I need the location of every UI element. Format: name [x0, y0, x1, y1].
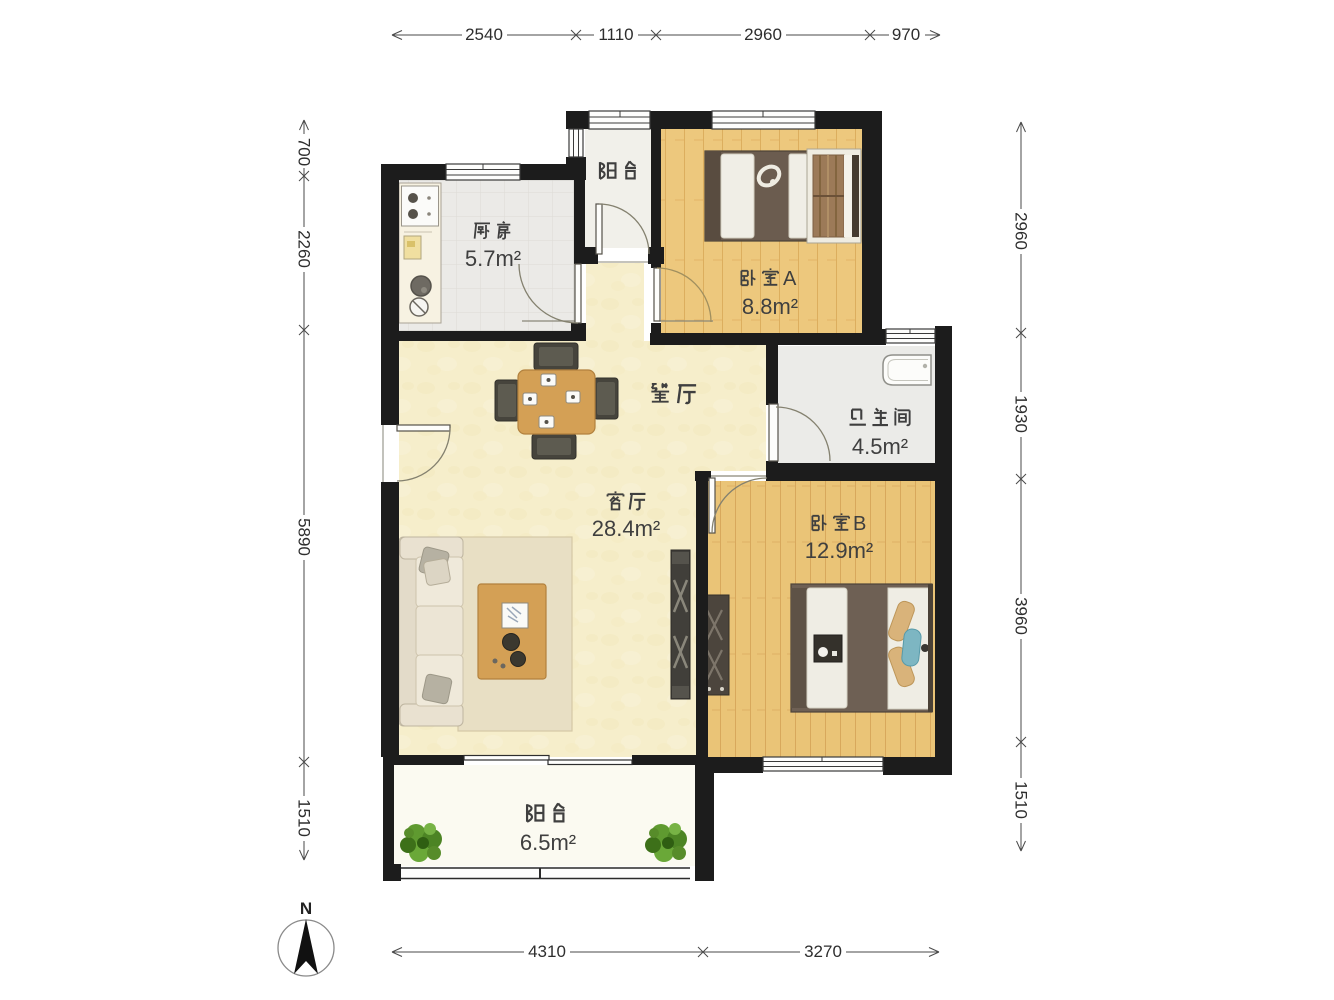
svg-text:970: 970: [892, 25, 920, 44]
svg-text:6.5m²: 6.5m²: [520, 830, 576, 855]
svg-text:B: B: [853, 513, 866, 535]
svg-text:8.8m²: 8.8m²: [742, 294, 798, 319]
svg-text:1510: 1510: [295, 799, 314, 837]
svg-text:2960: 2960: [1012, 212, 1031, 250]
svg-text:2540: 2540: [465, 25, 503, 44]
svg-text:4310: 4310: [528, 942, 566, 961]
svg-text:700: 700: [295, 138, 314, 166]
svg-text:5.7m²: 5.7m²: [465, 246, 521, 271]
svg-text:5890: 5890: [295, 518, 314, 556]
svg-text:A: A: [783, 268, 797, 290]
svg-text:N: N: [300, 899, 312, 918]
svg-text:1510: 1510: [1012, 781, 1031, 819]
svg-text:4.5m²: 4.5m²: [852, 434, 908, 459]
svg-text:3270: 3270: [804, 942, 842, 961]
svg-text:1930: 1930: [1012, 395, 1031, 433]
svg-text:1110: 1110: [598, 25, 633, 44]
svg-text:28.4m²: 28.4m²: [592, 516, 660, 541]
svg-text:2960: 2960: [744, 25, 782, 44]
svg-text:3960: 3960: [1012, 597, 1031, 635]
svg-text:12.9m²: 12.9m²: [805, 538, 873, 563]
svg-text:2260: 2260: [295, 230, 314, 268]
